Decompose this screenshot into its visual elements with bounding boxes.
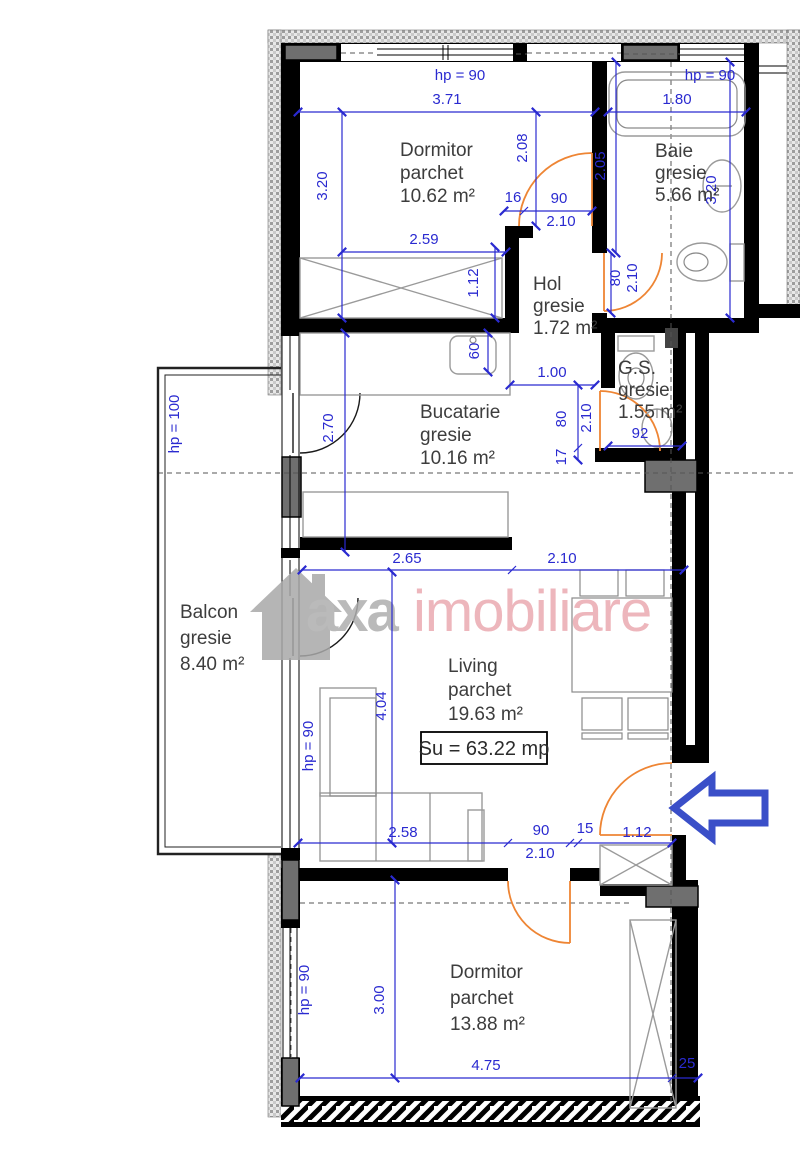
- dim-60: 60: [466, 343, 483, 360]
- dim-300: 3.00: [371, 985, 388, 1014]
- closet-entrance: [600, 845, 672, 885]
- dim-90-door1: 90: [551, 190, 568, 207]
- kitchen-island: [303, 492, 508, 537]
- dim-17: 17: [553, 449, 570, 466]
- room-floor: gresie: [618, 380, 670, 401]
- dim-25: 25: [679, 1055, 696, 1072]
- room-floor: parchet: [400, 163, 464, 184]
- dim-15: 15: [577, 820, 594, 837]
- room-area: 1.55 m²: [618, 402, 682, 423]
- watermark: axa imobiliare: [250, 568, 651, 660]
- usable-area-value: Su = 63.22 mp: [419, 738, 550, 760]
- dim-90-door2: 90: [533, 822, 550, 839]
- dim-210-pass: 2.10: [547, 550, 576, 567]
- room-floor: gresie: [533, 296, 585, 317]
- label-gs: G.S. gresie 1.55 m²: [618, 358, 682, 423]
- watermark-suffix: imobiliare: [413, 579, 651, 644]
- room-name: Dormitor: [450, 962, 524, 983]
- room-name: Hol: [533, 274, 562, 295]
- room-name: Baie: [655, 141, 693, 162]
- window-kitchen-balcony: [281, 326, 300, 558]
- floor-plan: axa imobiliare hp = 90 3.71 3: [0, 0, 800, 1175]
- dim-hp90-bottom: hp = 90: [296, 965, 313, 1015]
- dim-371: 3.71: [432, 91, 461, 108]
- room-name: Balcon: [180, 602, 238, 623]
- dim-258: 2.58: [388, 824, 417, 841]
- room-area: 8.40 m²: [180, 654, 244, 675]
- room-name: G.S.: [618, 358, 656, 379]
- toilet-baie: [677, 243, 744, 281]
- watermark-brand: axa: [306, 579, 400, 644]
- dim-180: 1.80: [662, 91, 691, 108]
- room-area: 10.16 m²: [420, 448, 495, 469]
- room-area: 10.62 m²: [400, 186, 475, 207]
- dim-hp90-top-right: hp = 90: [685, 67, 735, 84]
- room-area: 5.66 m²: [655, 185, 719, 206]
- columns: [282, 45, 698, 1106]
- room-floor: parchet: [450, 988, 514, 1009]
- room-area: 13.88 m²: [450, 1014, 525, 1035]
- dim-112-entrance: 1.12: [622, 824, 651, 841]
- window-dormitor1: [377, 44, 513, 61]
- floor-plan-drawing: axa imobiliare hp = 90 3.71 3: [0, 0, 800, 1175]
- dim-hp100-balcony: hp = 100: [166, 395, 183, 454]
- label-dormitor2: Dormitor parchet 13.88 m²: [450, 962, 525, 1035]
- entrance-arrow: [674, 778, 765, 838]
- bottom-wall-hatch: [281, 1101, 700, 1122]
- dim-210-door2: 2.10: [525, 845, 554, 862]
- room-floor: gresie: [655, 163, 707, 184]
- label-baie: Baie gresie 5.66 m²: [655, 141, 719, 206]
- room-area: 1.72 m²: [533, 318, 597, 339]
- room-floor: gresie: [420, 425, 472, 446]
- dim-80-baie: 80: [607, 270, 624, 287]
- room-name: Bucatarie: [420, 402, 500, 423]
- room-floor: gresie: [180, 628, 232, 649]
- dim-320-left: 3.20: [314, 171, 331, 200]
- wardrobe-dormitor2: [630, 920, 676, 1108]
- dim-100: 1.00: [537, 364, 566, 381]
- kitchen-counter: [300, 333, 510, 395]
- room-name: Dormitor: [400, 140, 474, 161]
- label-dormitor1: Dormitor parchet 10.62 m²: [400, 140, 475, 207]
- dim-210-gs: 2.10: [578, 403, 595, 432]
- room-floor: parchet: [448, 680, 512, 701]
- dim-hp90-top-left: hp = 90: [435, 67, 485, 84]
- dim-80-gs: 80: [553, 411, 570, 428]
- usable-area-box: Su = 63.22 mp: [419, 732, 550, 764]
- label-hol: Hol gresie 1.72 m²: [533, 274, 597, 339]
- dim-112-bed: 1.12: [465, 268, 482, 297]
- exterior-hatching: [268, 30, 800, 1117]
- dim-475: 4.75: [471, 1057, 500, 1074]
- window-dormitor2: [283, 928, 297, 1058]
- label-balcon: Balcon gresie 8.40 m²: [180, 602, 244, 675]
- dim-210-baie: 2.10: [624, 263, 641, 292]
- dim-210-door1: 2.10: [546, 213, 575, 230]
- room-area: 19.63 m²: [448, 704, 523, 725]
- dim-265: 2.65: [392, 550, 421, 567]
- dim-16: 16: [505, 189, 522, 206]
- dim-205: 2.05: [592, 151, 609, 180]
- label-bucatarie: Bucatarie gresie 10.16 m²: [420, 402, 500, 469]
- dim-92: 92: [632, 425, 649, 442]
- label-living: Living parchet 19.63 m²: [448, 656, 523, 725]
- dim-208: 2.08: [514, 133, 531, 162]
- room-name: Living: [448, 656, 498, 677]
- dim-259: 2.59: [409, 231, 438, 248]
- dim-404: 4.04: [373, 691, 390, 720]
- window-baie: [680, 44, 744, 61]
- door-dormitor2: [508, 881, 570, 943]
- dim-270: 2.70: [320, 413, 337, 442]
- dim-hp90-living: hp = 90: [300, 721, 317, 771]
